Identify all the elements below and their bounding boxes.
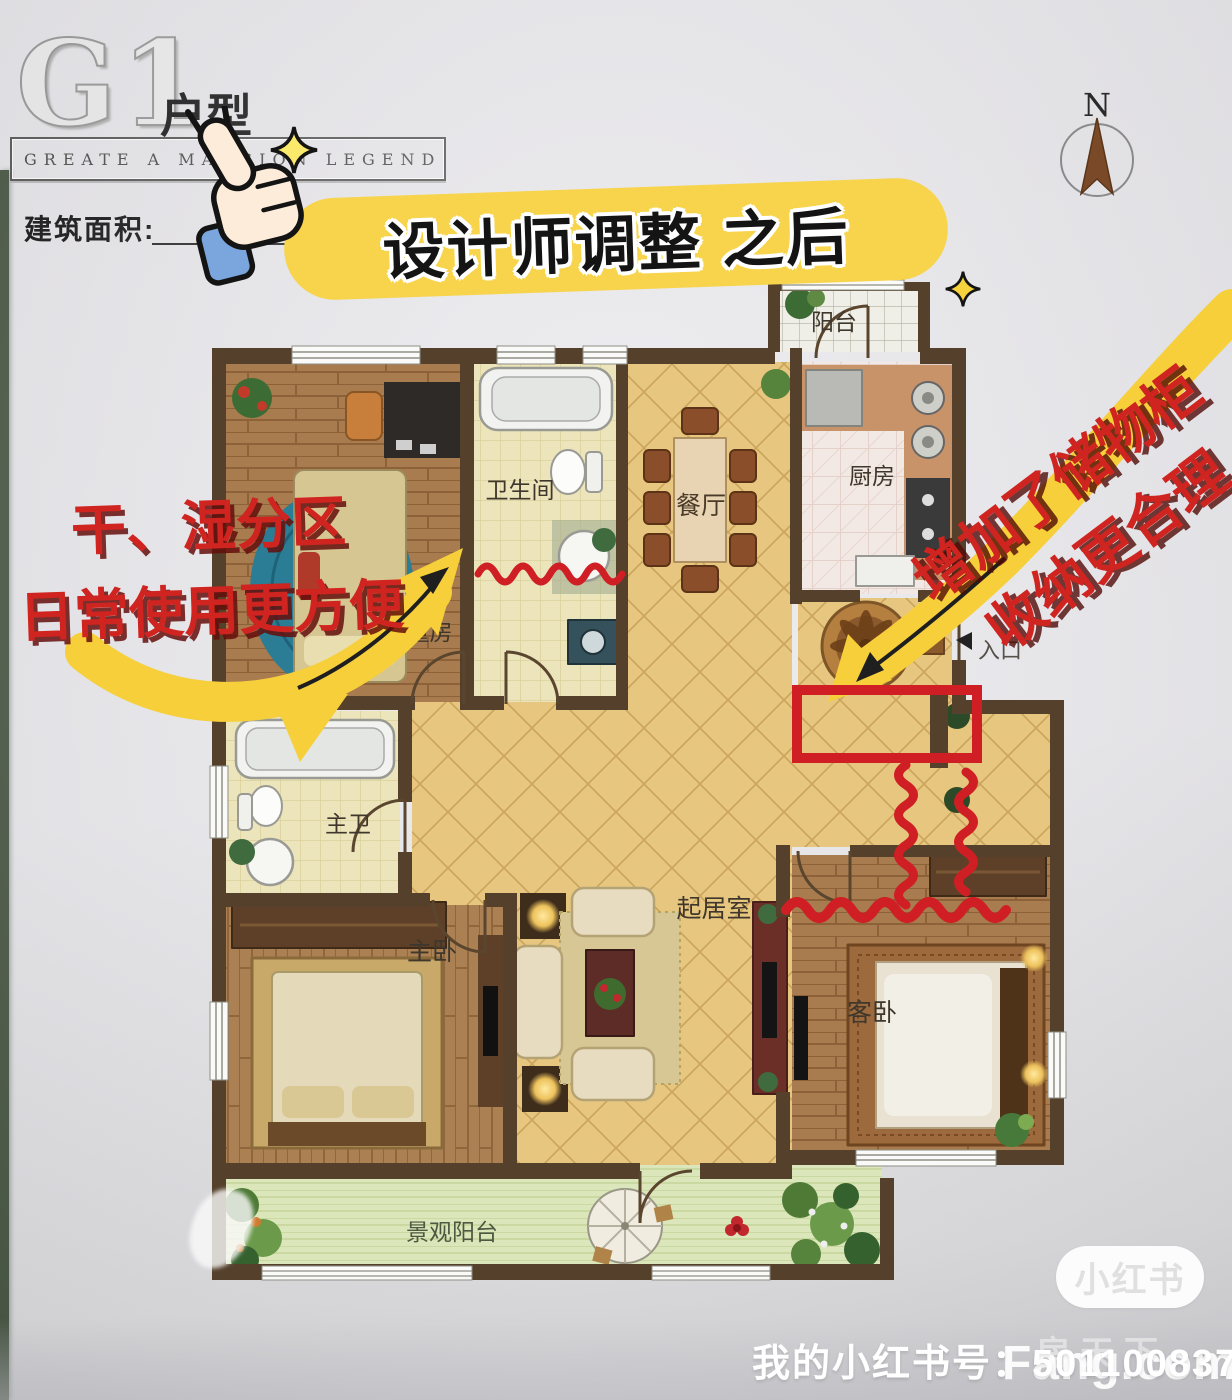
kitchen-sink <box>806 370 862 426</box>
note-dry-wet-zones: 干、湿分区 日常使用更方便 <box>0 477 429 662</box>
chair <box>346 392 382 440</box>
sink-icon <box>247 839 293 885</box>
lamp-icon <box>528 1072 562 1106</box>
toilet-icon <box>250 786 282 826</box>
sofa <box>572 1048 654 1100</box>
sofa <box>514 946 562 1058</box>
note-left-line1: 干、湿分区 <box>0 477 426 577</box>
compass: N <box>1038 86 1156 208</box>
xiaohongshu-id: 我的小红书号：501100837 <box>752 1332 1232 1387</box>
label-guest-bedroom: 客卧 <box>847 999 897 1027</box>
xiaohongshu-badge-label: 小红书 <box>1074 1252 1185 1303</box>
banner-text: 设计师调整 之后 <box>381 186 851 292</box>
label-master-bedroom: 主卧 <box>407 938 457 966</box>
lamp-icon <box>1020 1060 1048 1088</box>
tv-icon <box>762 962 777 1038</box>
label-bath: 卫生间 <box>486 477 555 503</box>
lamp-icon <box>1020 944 1048 972</box>
sparkle-icon <box>942 268 984 310</box>
label-living: 起居室 <box>676 895 751 923</box>
note-left-line2: 日常使用更方便 <box>0 562 429 662</box>
sparkle-icon <box>266 122 322 178</box>
lamp-icon <box>526 899 560 933</box>
label-dining: 餐厅 <box>676 492 726 520</box>
label-kitchen: 厨房 <box>849 463 895 489</box>
tv-icon <box>794 996 808 1080</box>
plant-icon <box>761 369 791 399</box>
north-arrow-icon <box>1081 118 1113 194</box>
tv-icon <box>483 986 498 1056</box>
photo-of-floorplan-post: 阳台 卫生间 儿童房 餐厅 厨房 入口 主卫 主卧 起居室 客卧 景观阳台 <box>0 0 1232 1400</box>
label-balcony-top: 阳台 <box>811 309 857 335</box>
toilet-icon <box>551 450 585 494</box>
label-view-balcony: 景观阳台 <box>406 1219 498 1245</box>
sofa <box>572 888 654 936</box>
xiaohongshu-badge: 小红书 <box>1056 1246 1204 1308</box>
xiaohongshu-id-value: 501100837 <box>1032 1343 1232 1385</box>
label-master-bath: 主卫 <box>325 811 371 837</box>
plant-icon <box>232 378 272 418</box>
